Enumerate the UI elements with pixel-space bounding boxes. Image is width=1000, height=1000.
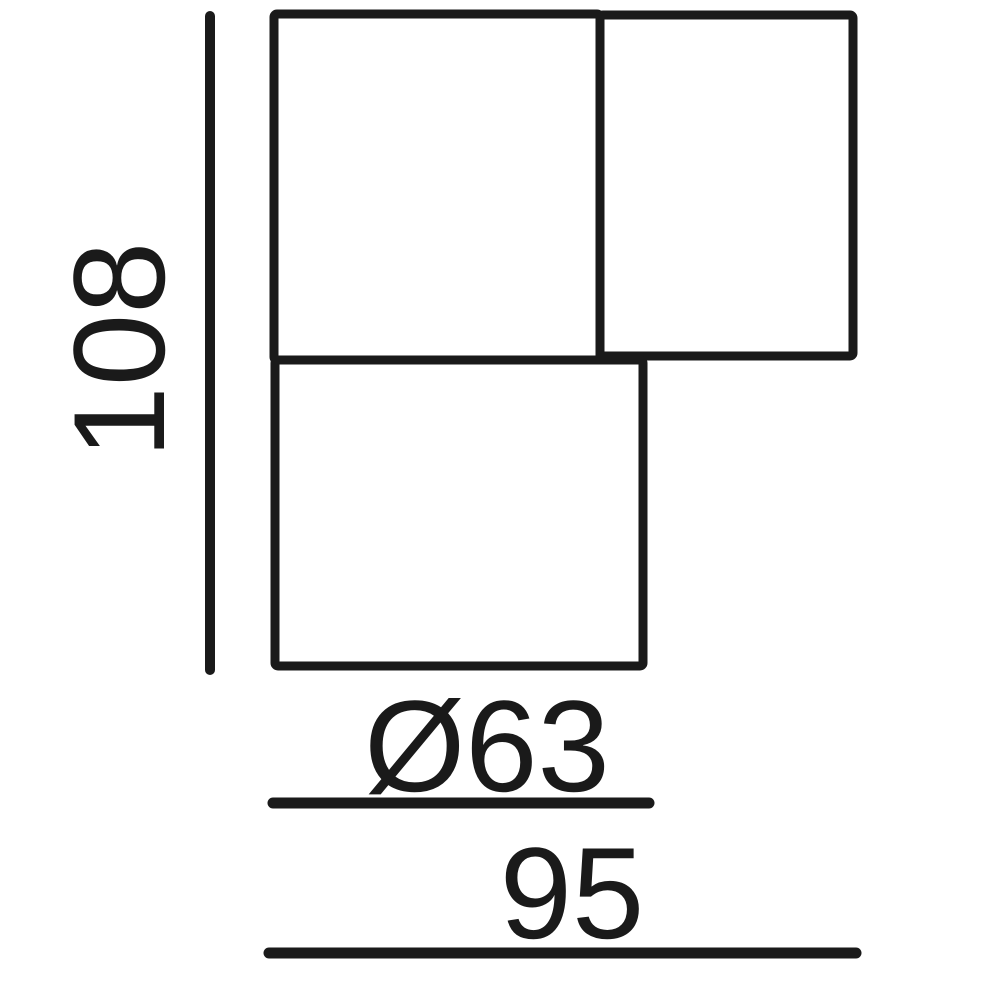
width-dimension-label: 95	[500, 820, 645, 966]
drawing-svg: 108 Ø63 95	[0, 0, 1000, 1000]
dimension-drawing: 108 Ø63 95	[0, 0, 1000, 1000]
diameter-dimension-label: Ø63	[364, 673, 610, 819]
body-top-left-rectangle	[274, 14, 600, 360]
body-top-right-rectangle	[600, 15, 853, 356]
body-bottom-rectangle	[275, 360, 643, 666]
height-dimension-label: 108	[46, 242, 192, 459]
